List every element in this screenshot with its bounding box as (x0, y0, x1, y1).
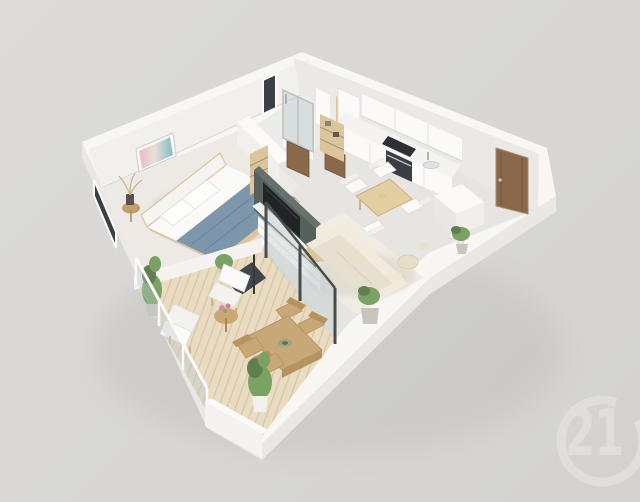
entrance-door (496, 148, 528, 214)
bathroom-window (263, 74, 276, 114)
century-21-watermark: 21 (561, 395, 640, 482)
century-21-logo-number: 21 (565, 395, 623, 470)
door-handle (498, 178, 501, 181)
pouf (398, 255, 418, 269)
screenshot: 21 (0, 0, 640, 502)
floor-plan-3d-render: 21 (0, 0, 640, 502)
